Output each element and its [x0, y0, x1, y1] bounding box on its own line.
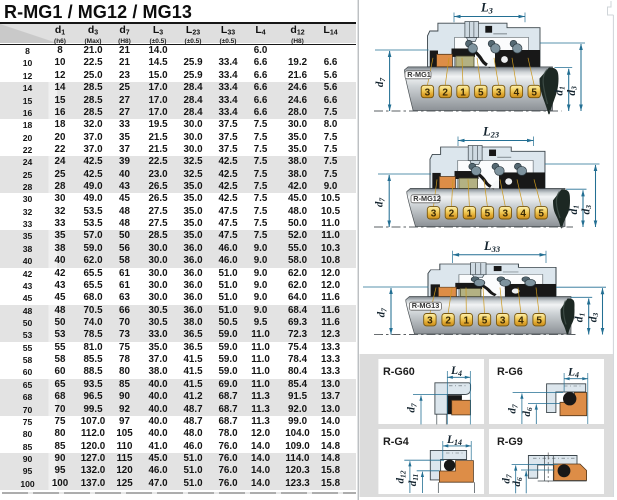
svg-text:1: 1: [464, 316, 470, 327]
svg-text:R-MG13: R-MG13: [412, 301, 440, 310]
svg-text:3: 3: [496, 87, 502, 98]
svg-text:R-MG1: R-MG1: [407, 70, 431, 79]
svg-text:R-G4: R-G4: [383, 436, 409, 448]
svg-text:4: 4: [514, 87, 520, 98]
svg-text:5: 5: [482, 316, 488, 327]
svg-text:4: 4: [520, 209, 526, 220]
svg-text:4: 4: [518, 316, 524, 327]
svg-text:1: 1: [467, 209, 473, 220]
svg-text:R-G9: R-G9: [497, 436, 523, 448]
svg-text:2: 2: [442, 87, 448, 98]
svg-text:R-MG12: R-MG12: [413, 194, 441, 203]
svg-text:R-G6: R-G6: [497, 366, 523, 378]
svg-text:3: 3: [427, 316, 433, 327]
svg-text:1: 1: [460, 87, 466, 98]
svg-text:3: 3: [500, 316, 506, 327]
svg-text:5: 5: [478, 87, 484, 98]
svg-text:5: 5: [531, 87, 537, 98]
svg-text:2: 2: [445, 316, 451, 327]
svg-text:R-G60: R-G60: [383, 366, 415, 378]
svg-text:3: 3: [431, 209, 437, 220]
svg-text:5: 5: [536, 316, 542, 327]
svg-text:5: 5: [485, 209, 491, 220]
svg-text:3: 3: [503, 209, 509, 220]
svg-text:5: 5: [538, 209, 544, 220]
svg-text:3: 3: [425, 87, 431, 98]
svg-text:2: 2: [449, 209, 455, 220]
